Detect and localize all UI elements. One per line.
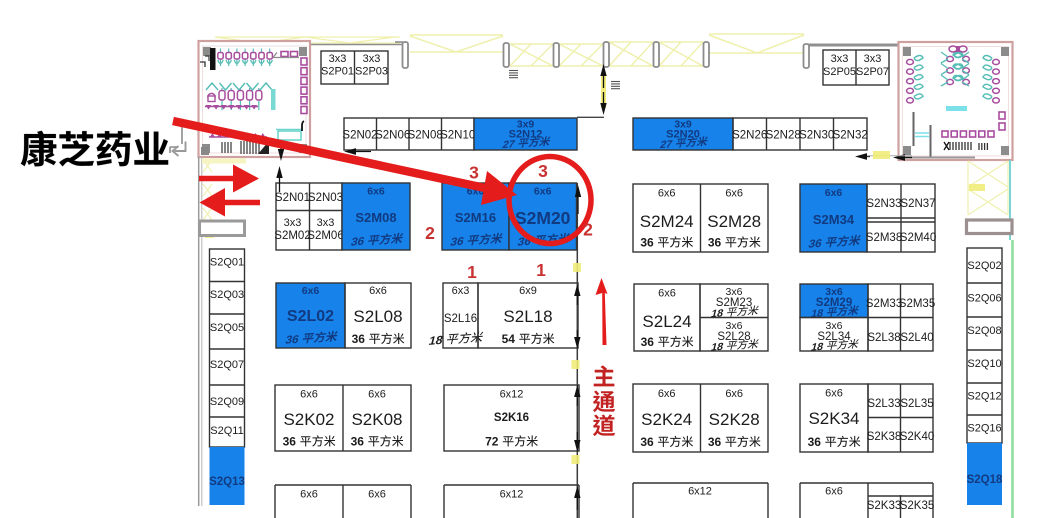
svg-text:36: 36 — [708, 435, 722, 449]
svg-text:S2N30: S2N30 — [799, 130, 834, 142]
svg-text:S2L08: S2L08 — [353, 307, 402, 326]
svg-text:S2L33: S2L33 — [867, 398, 900, 410]
svg-text:S2Q01: S2Q01 — [210, 257, 244, 269]
svg-text:S2M33: S2M33 — [866, 298, 902, 310]
svg-text:S2P05: S2P05 — [823, 66, 856, 78]
svg-text:S2Q02: S2Q02 — [967, 260, 1001, 272]
svg-text:S2N37: S2N37 — [900, 198, 935, 210]
svg-text:6x6: 6x6 — [368, 489, 386, 501]
svg-text:6x12: 6x12 — [688, 486, 712, 498]
svg-text:1: 1 — [467, 262, 477, 282]
svg-text:3x3: 3x3 — [864, 53, 882, 65]
svg-text:6x6: 6x6 — [658, 388, 676, 400]
svg-text:3x3: 3x3 — [363, 53, 381, 65]
svg-text:6x12: 6x12 — [500, 489, 524, 501]
svg-text:S2M40: S2M40 — [900, 232, 936, 244]
svg-text:S2K33: S2K33 — [867, 500, 902, 512]
svg-text:S2L18: S2L18 — [503, 307, 552, 326]
svg-text:S2M35: S2M35 — [899, 298, 935, 310]
svg-text:S2Q06: S2Q06 — [967, 293, 1001, 305]
svg-text:3x3: 3x3 — [317, 217, 335, 229]
svg-text:6x6: 6x6 — [302, 285, 320, 297]
svg-text:6x6: 6x6 — [368, 389, 386, 401]
svg-text:36: 36 — [640, 435, 654, 449]
svg-text:3: 3 — [469, 163, 479, 183]
svg-text:72: 72 — [485, 435, 499, 449]
svg-text:S2N33: S2N33 — [866, 198, 901, 210]
svg-text:S2Q13: S2Q13 — [209, 476, 245, 488]
svg-text:3x3: 3x3 — [329, 53, 347, 65]
svg-text:S2L40: S2L40 — [900, 332, 933, 344]
svg-text:S2K40: S2K40 — [900, 431, 935, 443]
svg-text:S2N10: S2N10 — [440, 130, 475, 142]
svg-text:3x3: 3x3 — [284, 217, 302, 229]
svg-text:36: 36 — [641, 335, 655, 349]
svg-text:S2N06: S2N06 — [375, 130, 410, 142]
svg-text:S2K08: S2K08 — [351, 410, 402, 429]
svg-text:3: 3 — [538, 161, 548, 181]
svg-text:S2L38: S2L38 — [867, 332, 900, 344]
svg-text:36: 36 — [708, 236, 722, 250]
svg-text:S2M02: S2M02 — [274, 230, 310, 242]
svg-text:2: 2 — [425, 223, 435, 243]
svg-text:S2Q09: S2Q09 — [210, 396, 244, 408]
svg-text:6x9: 6x9 — [519, 285, 537, 297]
svg-text:S2N28: S2N28 — [766, 130, 801, 142]
svg-text:6x6: 6x6 — [825, 388, 843, 400]
svg-text:S2K38: S2K38 — [867, 431, 902, 443]
svg-text:6x6: 6x6 — [300, 389, 318, 401]
svg-text:36: 36 — [640, 236, 654, 250]
svg-text:54: 54 — [502, 332, 516, 346]
svg-text:S2P01: S2P01 — [321, 66, 354, 78]
svg-text:6x3: 6x3 — [452, 285, 470, 297]
svg-text:S2P03: S2P03 — [355, 66, 388, 78]
svg-text:36: 36 — [352, 332, 366, 346]
svg-text:S2Q03: S2Q03 — [210, 289, 244, 301]
svg-text:S2M28: S2M28 — [707, 212, 761, 231]
svg-text:6x6: 6x6 — [725, 188, 743, 200]
svg-text:6x12: 6x12 — [500, 389, 524, 401]
svg-text:S2K02: S2K02 — [283, 410, 334, 429]
svg-text:6x6: 6x6 — [300, 489, 318, 501]
svg-text:3x3: 3x3 — [831, 53, 849, 65]
svg-text:S2N02: S2N02 — [342, 130, 377, 142]
svg-text:S2Q08: S2Q08 — [967, 325, 1001, 337]
svg-text:S2Q12: S2Q12 — [967, 391, 1001, 403]
svg-text:6x6: 6x6 — [825, 486, 843, 498]
svg-text:S2M08: S2M08 — [355, 210, 396, 225]
svg-text:S2M34: S2M34 — [813, 212, 855, 227]
svg-text:S2Q05: S2Q05 — [210, 322, 244, 334]
svg-text:S2L16: S2L16 — [444, 313, 477, 325]
svg-text:S2L35: S2L35 — [900, 398, 933, 410]
svg-text:S2K16: S2K16 — [494, 412, 529, 424]
svg-text:1: 1 — [536, 260, 546, 280]
svg-text:S2K28: S2K28 — [709, 410, 760, 429]
svg-text:S2Q18: S2Q18 — [967, 474, 1003, 486]
svg-text:S2M24: S2M24 — [640, 212, 694, 231]
svg-text:S2Q16: S2Q16 — [967, 423, 1001, 435]
svg-text:S2P07: S2P07 — [856, 66, 889, 78]
svg-text:6x6: 6x6 — [367, 186, 385, 198]
svg-text:S2Q07: S2Q07 — [210, 359, 244, 371]
svg-text:S2M20: S2M20 — [515, 208, 571, 228]
svg-text:S2M38: S2M38 — [866, 232, 902, 244]
svg-text:S2K35: S2K35 — [900, 500, 935, 512]
svg-text:36: 36 — [283, 435, 297, 449]
svg-text:2: 2 — [583, 220, 593, 240]
svg-text:6x6: 6x6 — [825, 187, 843, 199]
svg-text:S2K24: S2K24 — [641, 410, 692, 429]
svg-text:6x6: 6x6 — [658, 188, 676, 200]
svg-text:S2M06: S2M06 — [307, 230, 343, 242]
svg-text:S2N01: S2N01 — [275, 192, 310, 204]
svg-text:S2L02: S2L02 — [287, 308, 334, 325]
svg-text:S2Q10: S2Q10 — [967, 358, 1001, 370]
svg-text:S2N08: S2N08 — [408, 130, 443, 142]
svg-text:S2L24: S2L24 — [642, 312, 691, 331]
svg-text:36: 36 — [808, 435, 822, 449]
svg-text:36: 36 — [351, 435, 365, 449]
svg-text:S2N32: S2N32 — [833, 130, 868, 142]
svg-text:S2N26: S2N26 — [732, 130, 767, 142]
svg-text:6x6: 6x6 — [369, 285, 387, 297]
svg-text:S2Q11: S2Q11 — [210, 425, 243, 437]
svg-text:6x6: 6x6 — [658, 288, 676, 300]
svg-text:S2M16: S2M16 — [455, 210, 496, 225]
svg-text:S2K34: S2K34 — [808, 409, 859, 428]
svg-text:6x6: 6x6 — [725, 388, 743, 400]
svg-text:S2N03: S2N03 — [308, 192, 343, 204]
svg-text:6x6: 6x6 — [534, 186, 552, 198]
